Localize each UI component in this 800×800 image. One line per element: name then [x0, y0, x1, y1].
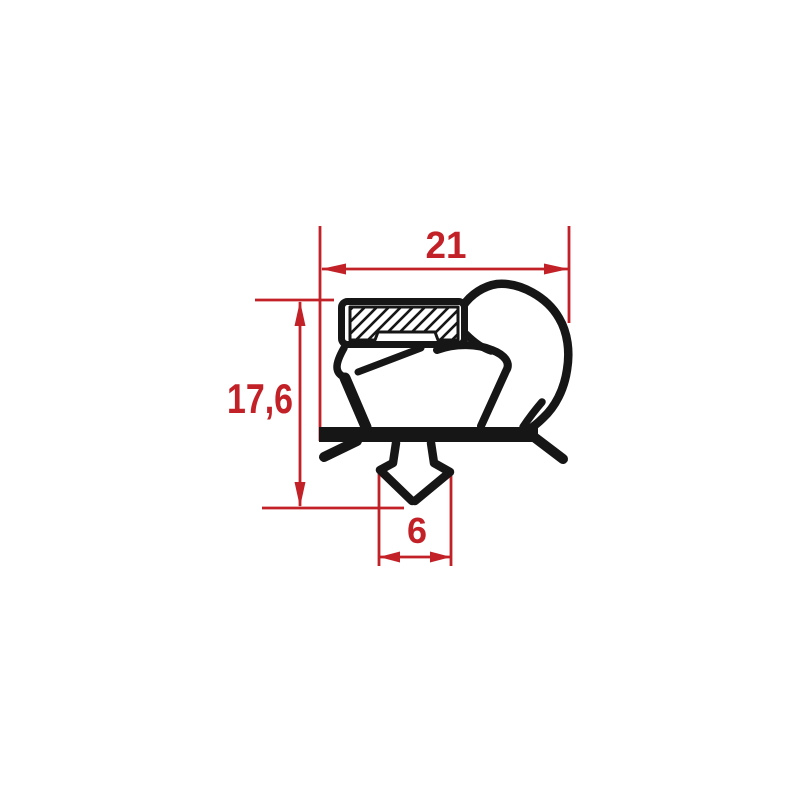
arrowhead-left [379, 552, 400, 563]
anchor-dart-right [415, 443, 450, 501]
arrowhead-left [321, 264, 346, 275]
dimension-width-label: 21 [426, 225, 467, 267]
base-tail-right [534, 437, 563, 459]
arrowhead-top [295, 301, 306, 326]
dimension-height-label: 17,6 [227, 375, 293, 422]
left-wall-wedge [345, 378, 366, 427]
left-wall-upper [337, 348, 344, 376]
arrowhead-right [544, 264, 569, 275]
dimension-annotations: 21 17,6 6 [227, 225, 569, 566]
bellows-fold-right [437, 345, 508, 426]
gasket-profile-outline [319, 284, 568, 501]
anchor-dart-left [380, 443, 412, 501]
arrowhead-bottom [295, 482, 306, 507]
technical-drawing-canvas: 21 17,6 6 [0, 0, 800, 800]
bellows-fold-inner [358, 348, 421, 372]
gasket-profile-figure: 21 17,6 6 [0, 0, 800, 800]
dimension-anchor-width-label: 6 [407, 510, 427, 551]
arrowhead-right [430, 552, 451, 563]
balloon-seal-curve [463, 284, 568, 430]
base-tail-left [324, 441, 357, 457]
